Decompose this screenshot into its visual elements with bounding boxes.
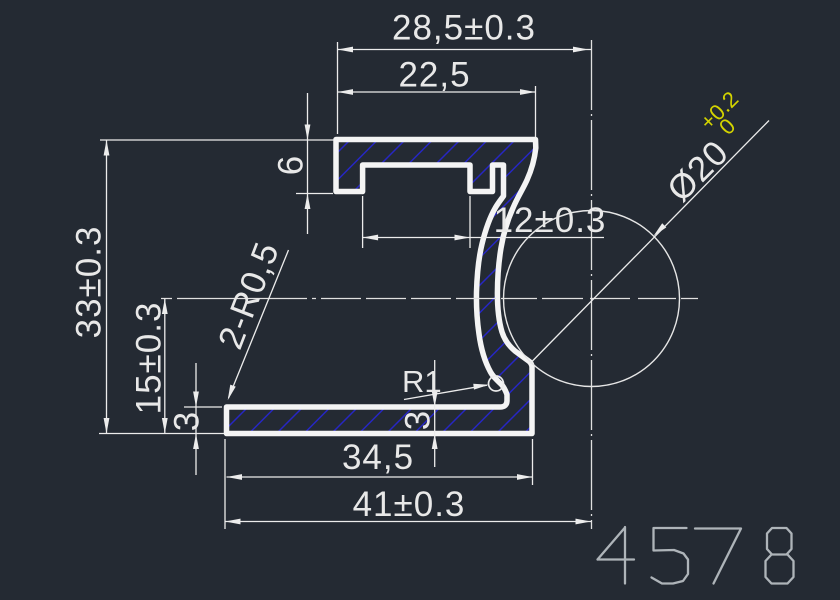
svg-text:3: 3 bbox=[168, 411, 207, 431]
svg-text:34,5: 34,5 bbox=[342, 438, 414, 477]
svg-text:R1: R1 bbox=[402, 364, 442, 399]
svg-text:6: 6 bbox=[272, 155, 311, 175]
svg-text:22,5: 22,5 bbox=[398, 56, 470, 95]
svg-text:41±0.3: 41±0.3 bbox=[353, 485, 466, 524]
svg-text:28,5±0.3: 28,5±0.3 bbox=[392, 9, 536, 48]
svg-text:12±0.3: 12±0.3 bbox=[494, 201, 607, 240]
svg-text:3: 3 bbox=[399, 410, 438, 430]
svg-text:33±0.3: 33±0.3 bbox=[70, 226, 109, 339]
svg-text:15±0.3: 15±0.3 bbox=[130, 302, 169, 415]
